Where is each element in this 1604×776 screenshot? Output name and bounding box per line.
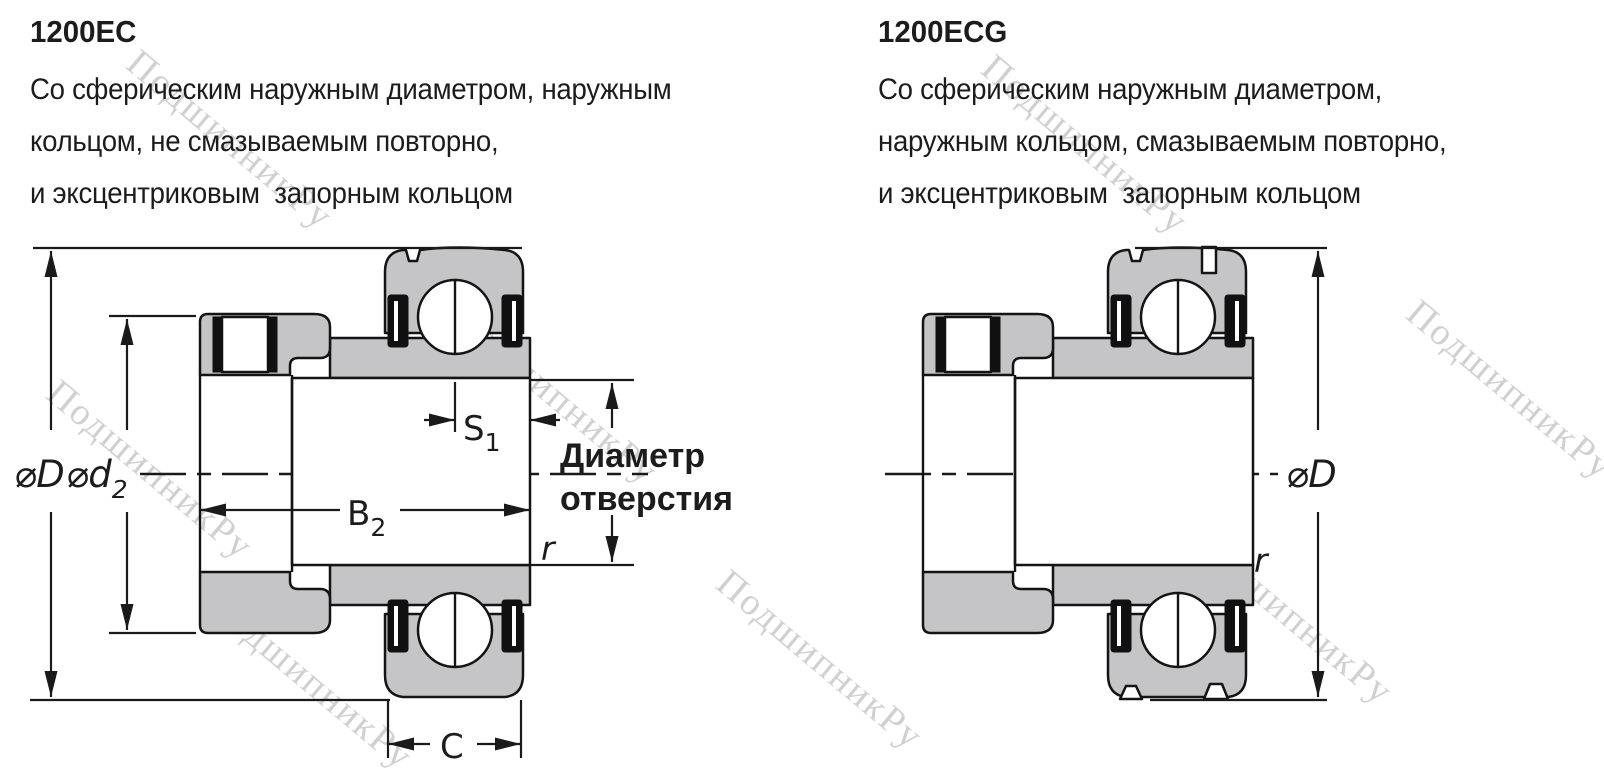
eccentric-collar-top: [923, 314, 1053, 375]
outer-ring-bottom: [1108, 593, 1246, 699]
seal-bottom-left: [1111, 600, 1131, 652]
product-description-line: Со сферическим наружным диаметром, наруж…: [30, 64, 671, 116]
seal-top-left: [388, 295, 408, 347]
bore-label-line1: Диаметр: [560, 437, 705, 475]
collar-hole-edge: [936, 317, 945, 372]
product-description-line: кольцом, не смазываемым повторно,: [30, 116, 671, 168]
outer-ring-top: [1108, 247, 1246, 354]
product-description-line: и эксцентриковым запорным кольцом: [878, 168, 1446, 220]
collar-hole-edge: [991, 317, 1000, 372]
bore-label-line2: отверстия: [560, 480, 733, 518]
dim-label-radius: r: [1254, 541, 1270, 580]
dim-bore-diameter: Диаметр отверстия: [530, 380, 733, 565]
product-title: 1200EC: [30, 14, 692, 50]
product-description-line: и эксцентриковым запорным кольцом: [30, 168, 671, 220]
product-header-1200ecg: 1200ECG Со сферическим наружным диаметро…: [878, 14, 1496, 220]
bore: [1015, 378, 1253, 565]
collar-hole-edge: [268, 317, 277, 372]
inner-ring: [923, 338, 1253, 605]
seal-top-right: [1225, 295, 1245, 347]
bearing-diagram-1200ecg: ⌀D r: [800, 230, 1604, 776]
eccentric-collar-bottom: [923, 572, 1053, 633]
eccentric-collar-top: [200, 314, 330, 375]
dim-label-collar-diameter: ⌀d2: [66, 453, 128, 504]
inner-ring: [200, 338, 530, 605]
eccentric-collar-bottom: [200, 572, 330, 633]
seal-bottom-right: [1225, 600, 1245, 652]
product-description-line: наружным кольцом, смазываемым повторно,: [878, 116, 1446, 168]
lubrication-hole: [1202, 247, 1216, 273]
bearing-diagram-1200ec: ⌀D ⌀d2 B2 S1 Диаметр о: [0, 230, 800, 776]
product-header-1200ec: 1200EC Со сферическим наружным диаметром…: [30, 14, 727, 220]
seal-bottom-right: [502, 600, 522, 652]
seal-top-right: [502, 295, 522, 347]
product-description-line: Со сферическим наружным диаметром,: [878, 64, 1446, 116]
dim-outer-ring-width: C: [388, 700, 521, 767]
bore: [292, 378, 530, 565]
seal-top-left: [1111, 295, 1131, 347]
catalog-page: ПодшипникРуПодшипникРуПодшипникРуПодшипн…: [0, 0, 1604, 776]
product-title: 1200ECG: [878, 14, 1465, 50]
collar-hole-edge: [213, 317, 222, 372]
dim-label-c: C: [440, 727, 464, 767]
dim-label-outer-diameter: ⌀D: [14, 453, 65, 496]
dim-label-outer-diameter: ⌀D: [1286, 453, 1337, 496]
dim-label-radius: r: [541, 529, 557, 568]
seal-bottom-left: [388, 600, 408, 652]
outer-ring-bottom: [385, 593, 523, 697]
